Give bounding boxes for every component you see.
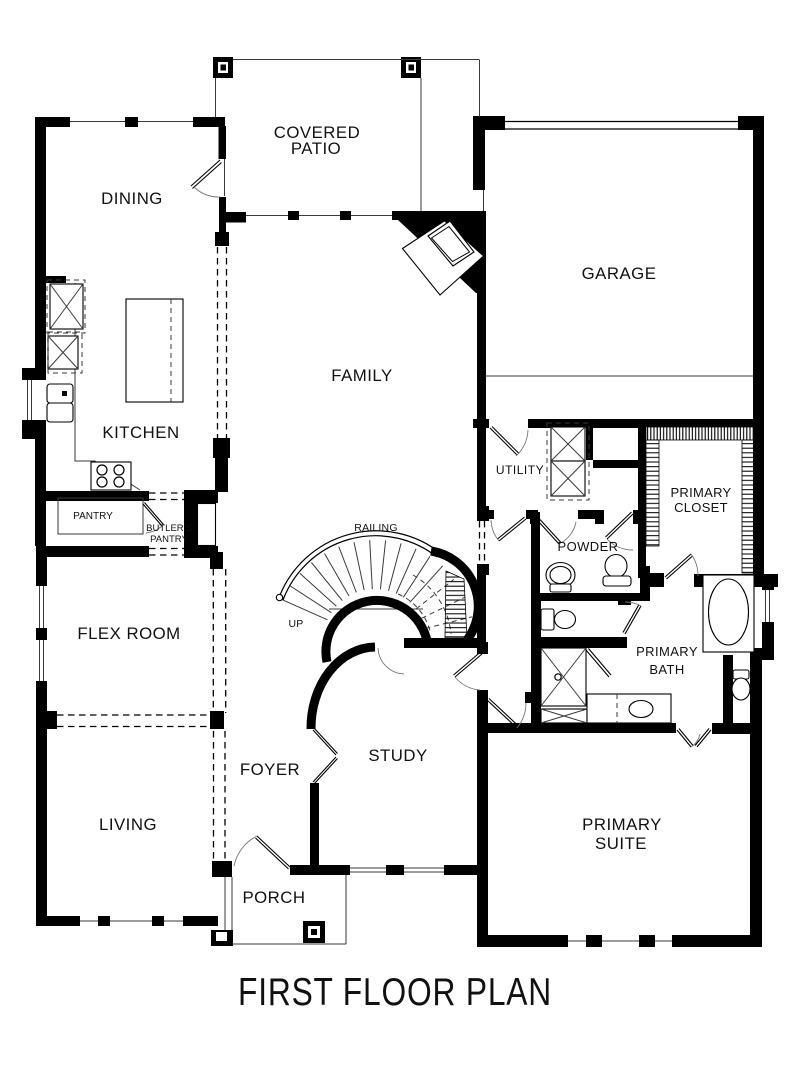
svg-text:PRIMARY: PRIMARY: [670, 485, 731, 500]
svg-text:FOYER: FOYER: [240, 760, 300, 779]
svg-text:UP: UP: [289, 618, 304, 630]
svg-text:DINING: DINING: [101, 189, 163, 208]
svg-text:FLEX ROOM: FLEX ROOM: [77, 624, 180, 643]
svg-text:PRIMARY: PRIMARY: [582, 815, 662, 834]
svg-text:STUDY: STUDY: [368, 746, 427, 765]
svg-text:RAILING: RAILING: [354, 522, 397, 534]
svg-text:PANTRY: PANTRY: [150, 534, 188, 545]
svg-text:BUTLER'S: BUTLER'S: [146, 523, 192, 534]
svg-text:PANTRY: PANTRY: [73, 511, 113, 522]
svg-text:SUITE: SUITE: [595, 834, 647, 853]
svg-text:PORCH: PORCH: [242, 888, 305, 907]
svg-text:FAMILY: FAMILY: [331, 366, 392, 385]
svg-text:UTILITY: UTILITY: [496, 463, 544, 477]
svg-text:LIVING: LIVING: [99, 815, 157, 834]
svg-text:KITCHEN: KITCHEN: [102, 423, 179, 442]
svg-text:POWDER: POWDER: [558, 539, 619, 554]
svg-text:CLOSET: CLOSET: [674, 500, 728, 515]
svg-text:PRIMARY: PRIMARY: [636, 644, 698, 659]
svg-text:GARAGE: GARAGE: [582, 264, 657, 283]
svg-text:BATH: BATH: [649, 662, 684, 677]
svg-text:FIRST FLOOR PLAN: FIRST FLOOR PLAN: [238, 971, 552, 1014]
svg-text:PATIO: PATIO: [291, 139, 341, 158]
